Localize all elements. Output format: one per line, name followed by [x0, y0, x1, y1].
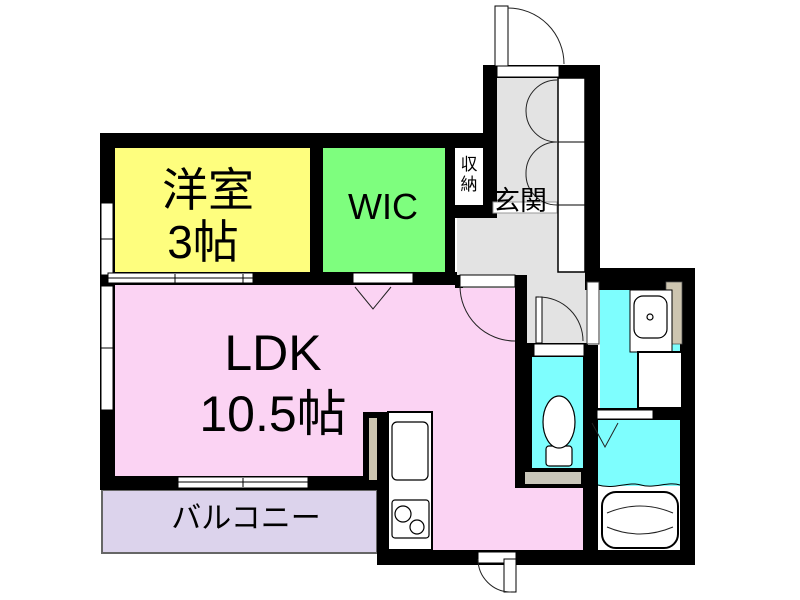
entry-door-leaf [495, 6, 508, 66]
stove-burner-1 [395, 506, 411, 522]
label-western-size: 3帖 [167, 216, 239, 268]
wall-western-wic-divider [310, 133, 323, 285]
wall-hall-ldk [515, 275, 527, 345]
service-door-leaf [504, 559, 516, 592]
wall-toilet-left [515, 345, 532, 470]
hallway-lower [525, 278, 587, 345]
wall-balcony-right [377, 487, 388, 553]
label-ldk: LDK [224, 325, 321, 381]
entrance-doorway [497, 66, 559, 77]
washroom-door [587, 282, 599, 344]
wall-right-upper [585, 65, 600, 278]
toilet-icon [543, 396, 575, 448]
bathtub-icon [602, 492, 678, 548]
wall-top [100, 133, 497, 148]
label-storage-char1: 収 [461, 155, 478, 174]
toilet-tank [546, 446, 572, 466]
label-ldk-size: 10.5帖 [199, 386, 346, 442]
ldk-doorway [460, 275, 515, 287]
toilet-threshold [525, 472, 581, 484]
wall-bath-left [583, 345, 598, 552]
label-balcony: バルコニー [171, 502, 320, 535]
label-wic: WIC [348, 186, 418, 227]
wall-bottom [377, 550, 695, 565]
floorplan-page: 洋室 3帖 WIC LDK 10.5帖 バルコニー 玄関 収 納 [0, 0, 800, 600]
wic-door-opening [353, 273, 413, 283]
label-western-room: 洋室 [162, 164, 254, 216]
pillar-pipe-space [369, 418, 377, 480]
kitchen-sink-icon [392, 422, 428, 480]
washbasin-drain [647, 314, 653, 320]
shoe-cabinet-icon [558, 78, 585, 272]
toilet-doorway [534, 344, 584, 356]
floorplan-diagram: 洋室 3帖 WIC LDK 10.5帖 バルコニー 玄関 収 納 [0, 0, 800, 600]
washing-machine-pan-icon [638, 352, 682, 408]
label-entrance: 玄関 [493, 186, 547, 216]
room-bathroom [598, 420, 680, 488]
stove-burner-2 [410, 520, 424, 534]
toilet-door-leaf [536, 297, 542, 343]
bathroom-door-opening [597, 410, 653, 419]
label-storage-char2: 納 [461, 175, 478, 194]
